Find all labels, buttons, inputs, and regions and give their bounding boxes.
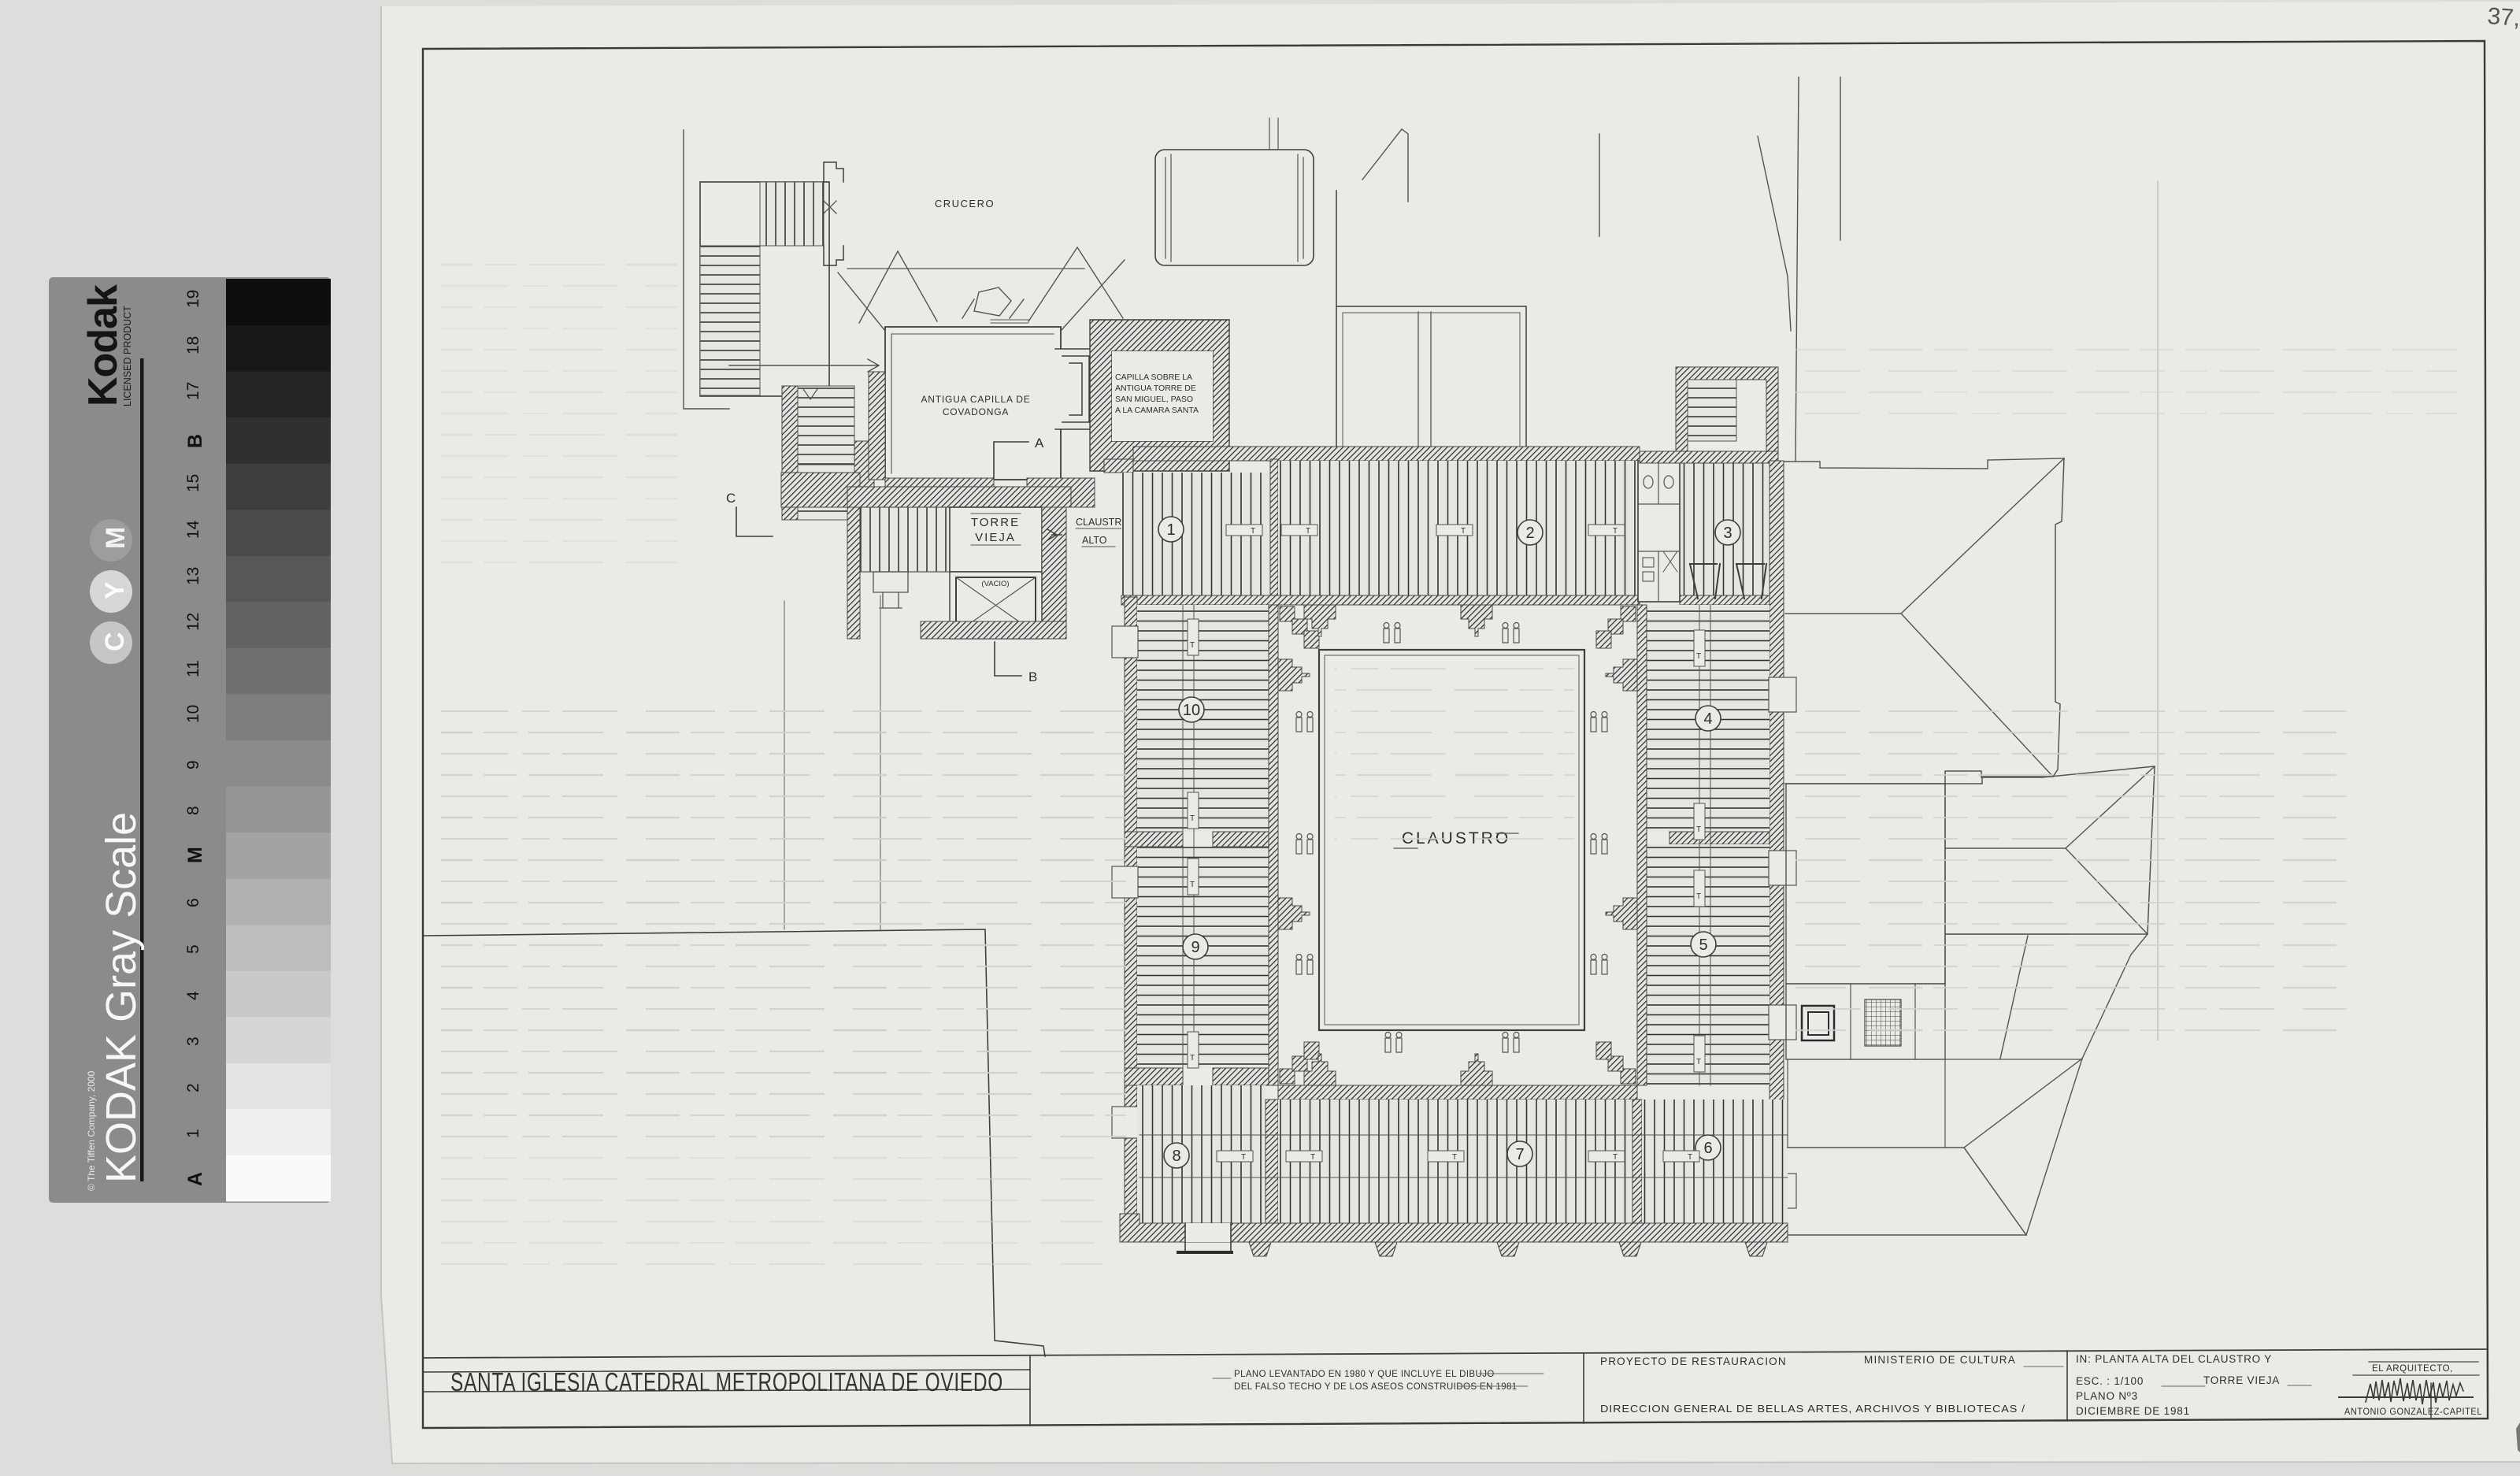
svg-text:6: 6: [1703, 1140, 1712, 1157]
svg-text:1: 1: [1166, 521, 1175, 539]
svg-text:9: 9: [1191, 939, 1199, 956]
svg-text:DIRECCION GENERAL DE BELLAS A: DIRECCION GENERAL DE BELLAS ARTES, ARCHI…: [1600, 1403, 2025, 1415]
svg-text:2: 2: [184, 1083, 202, 1092]
svg-text:8: 8: [1172, 1148, 1180, 1165]
svg-text:T: T: [1696, 1058, 1701, 1066]
svg-text:CAPILLA SOBRE LA: CAPILLA SOBRE LA: [1115, 373, 1192, 382]
svg-text:4: 4: [1703, 710, 1712, 728]
svg-text:1: 1: [184, 1129, 202, 1138]
svg-text:T: T: [1696, 892, 1701, 901]
svg-text:ANTIGUA CAPILLA DE: ANTIGUA CAPILLA DE: [921, 394, 1030, 405]
svg-text:2: 2: [1525, 525, 1534, 542]
svg-text:© The Tiffen Company, 2000: © The Tiffen Company, 2000: [86, 1070, 97, 1191]
svg-text:T: T: [1613, 527, 1618, 536]
svg-text:T: T: [1310, 1153, 1315, 1162]
svg-text:19: 19: [184, 290, 202, 308]
svg-text:C: C: [100, 632, 130, 651]
svg-text:Y: Y: [100, 581, 130, 599]
svg-text:9: 9: [184, 760, 202, 770]
svg-text:3: 3: [184, 1037, 202, 1046]
svg-text:B: B: [184, 434, 206, 448]
svg-text:8: 8: [184, 806, 202, 815]
svg-text:12: 12: [184, 613, 202, 631]
svg-text:17: 17: [184, 382, 202, 400]
svg-text:15: 15: [184, 474, 202, 492]
svg-text:TORRE: TORRE: [971, 516, 1020, 529]
svg-text:EL ARQUITECTO,: EL ARQUITECTO,: [2372, 1364, 2453, 1374]
svg-text:37,: 37,: [2487, 3, 2520, 32]
svg-text:B: B: [1028, 669, 1037, 684]
svg-text:SAN MIGUEL, PASO: SAN MIGUEL, PASO: [1115, 395, 1193, 404]
svg-text:PLANO LEVANTADO EN 1980 Y QUE: PLANO LEVANTADO EN 1980 Y QUE INCLUYE EL…: [1234, 1370, 1495, 1379]
svg-text:LICENSED PRODUCT: LICENSED PRODUCT: [122, 306, 133, 406]
svg-text:Kodak: Kodak: [80, 284, 126, 406]
svg-text:13: 13: [184, 567, 202, 585]
svg-text:SANTA IGLESIA CATEDRAL METROPO: SANTA IGLESIA CATEDRAL METROPOLITANA DE …: [450, 1368, 1003, 1397]
svg-text:(VACIO): (VACIO): [981, 580, 1009, 588]
svg-text:TORRE VIEJA: TORRE VIEJA: [2203, 1374, 2280, 1386]
svg-text:4: 4: [184, 991, 202, 1000]
svg-text:T: T: [1461, 527, 1466, 536]
svg-text:T: T: [1696, 825, 1701, 834]
svg-text:M: M: [184, 847, 206, 863]
svg-text:A: A: [1035, 436, 1044, 451]
svg-text:T: T: [1190, 814, 1195, 823]
svg-text:DEL FALSO TECHO Y DE LOS ASEOS: DEL FALSO TECHO Y DE LOS ASEOS CONSTRUID…: [1234, 1382, 1518, 1392]
svg-text:IN: PLANTA ALTA DEL CLAUSTRO: IN: PLANTA ALTA DEL CLAUSTRO Y: [2076, 1353, 2272, 1365]
svg-text:T: T: [1190, 641, 1195, 650]
svg-text:ANTONIO GONZALEZ-CAPITEL: ANTONIO GONZALEZ-CAPITEL: [2344, 1407, 2482, 1417]
svg-text:T: T: [1190, 881, 1195, 889]
svg-text:T: T: [1613, 1153, 1618, 1162]
svg-text:PLANO Nº3: PLANO Nº3: [2076, 1390, 2138, 1402]
svg-text:T: T: [1190, 1054, 1195, 1062]
svg-text:10: 10: [1183, 702, 1200, 719]
svg-text:CRUCERO: CRUCERO: [935, 198, 995, 210]
svg-text:ESC. : 1/100: ESC. : 1/100: [2076, 1375, 2144, 1387]
svg-text:3: 3: [1723, 525, 1732, 542]
svg-text:T: T: [1452, 1153, 1457, 1162]
svg-text:6: 6: [184, 898, 202, 907]
svg-text:T: T: [1306, 527, 1310, 536]
svg-text:ALTO: ALTO: [1082, 535, 1107, 546]
svg-text:T: T: [1688, 1153, 1692, 1162]
svg-text:ANTIGUA TORRE DE: ANTIGUA TORRE DE: [1115, 384, 1196, 393]
svg-text:11: 11: [184, 660, 202, 677]
svg-text:DICIEMBRE DE 1981: DICIEMBRE DE 1981: [2076, 1405, 2190, 1417]
svg-text:T: T: [1696, 652, 1701, 661]
svg-text:KODAK Gray Scale: KODAK Gray Scale: [98, 812, 145, 1183]
svg-text:A: A: [184, 1172, 206, 1186]
svg-text:14: 14: [184, 520, 202, 539]
svg-text:C: C: [726, 491, 736, 506]
svg-text:10: 10: [184, 705, 202, 723]
svg-text:COVADONGA: COVADONGA: [943, 406, 1009, 417]
svg-text:T: T: [1241, 1153, 1246, 1162]
svg-text:18: 18: [184, 336, 202, 354]
svg-text:M: M: [101, 527, 131, 549]
svg-text:5: 5: [1699, 936, 1707, 954]
svg-text:5: 5: [184, 944, 202, 954]
svg-text:T: T: [1251, 527, 1255, 536]
svg-text:VIEJA: VIEJA: [975, 531, 1016, 544]
svg-text:7: 7: [1515, 1146, 1524, 1163]
svg-text:PROYECTO DE RESTAURACION: PROYECTO DE RESTAURACION: [1600, 1355, 1787, 1367]
svg-text:MINISTERIO DE CULTURA: MINISTERIO DE CULTURA: [1864, 1354, 2016, 1366]
svg-text:A LA CAMARA SANTA: A LA CAMARA SANTA: [1115, 406, 1199, 415]
